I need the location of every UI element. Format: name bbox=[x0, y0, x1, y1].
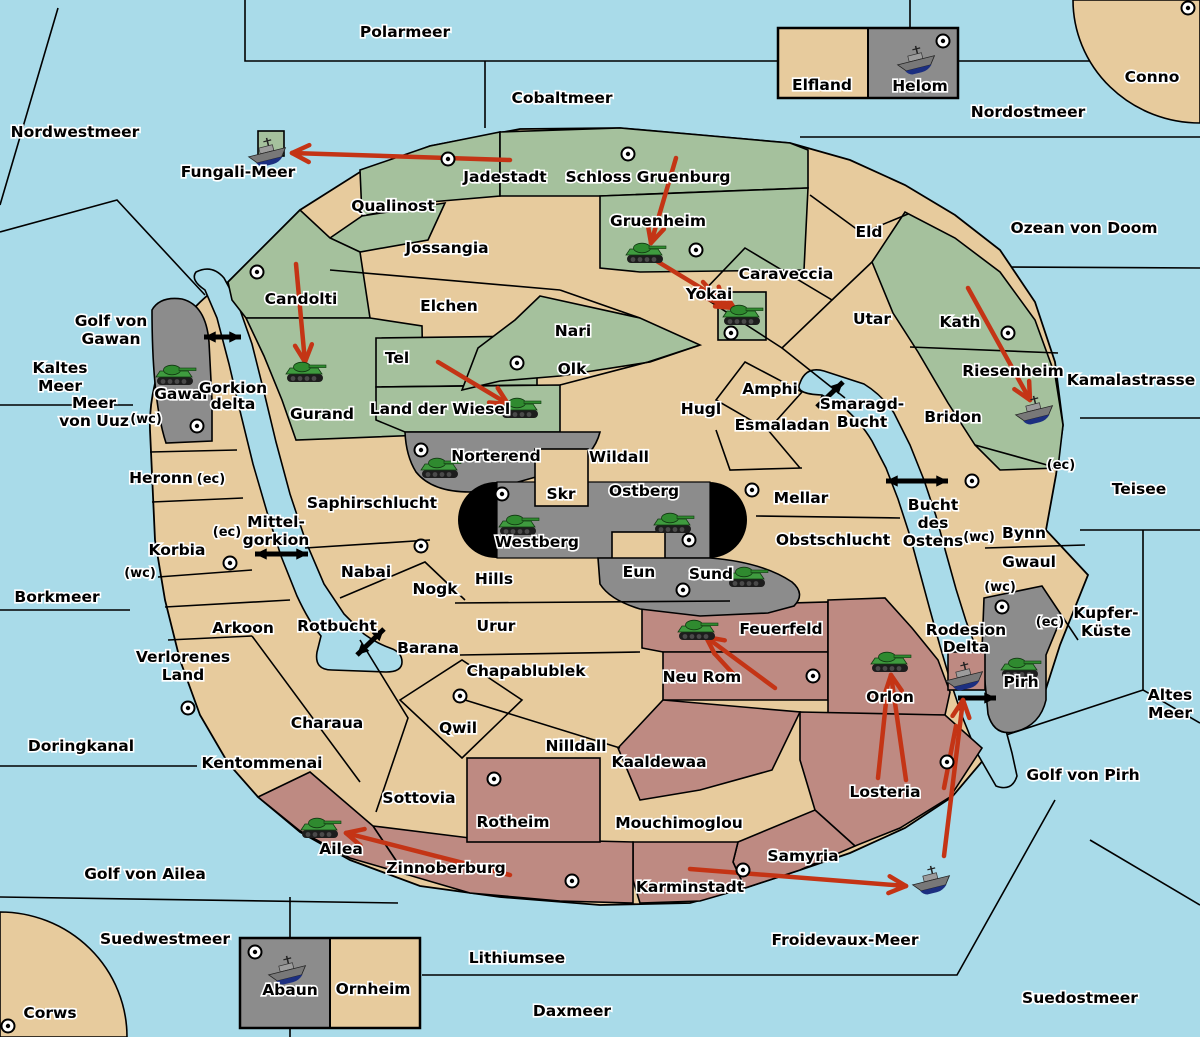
map-label: Gurand bbox=[290, 405, 354, 423]
map-label: Polarmeer bbox=[360, 23, 451, 41]
map-label: Losteria bbox=[849, 783, 920, 801]
map-label: Wildall bbox=[589, 448, 649, 466]
map-label: Skr bbox=[546, 485, 575, 503]
map-label: Obstschlucht bbox=[776, 531, 891, 549]
map-label: Tel bbox=[385, 349, 409, 367]
city-dot-icon bbox=[249, 946, 262, 959]
map-label: Pirh bbox=[1003, 673, 1038, 691]
map-label: (ec) bbox=[213, 525, 241, 540]
city-dot-icon bbox=[251, 266, 264, 279]
map-label: Hugl bbox=[681, 400, 721, 418]
map-label: Hills bbox=[475, 570, 513, 588]
map-label: Delta bbox=[943, 638, 990, 656]
city-dot-icon bbox=[690, 244, 703, 257]
map-label: Ailea bbox=[319, 840, 363, 858]
map-label: Fungali-Meer bbox=[181, 163, 296, 181]
city-dot-icon bbox=[415, 444, 428, 457]
map-label: Jadestadt bbox=[462, 168, 547, 186]
map-label: Rotbucht bbox=[297, 617, 377, 635]
map-label: Kath bbox=[940, 313, 981, 331]
map-label: Samyria bbox=[767, 847, 838, 865]
map-label: Meer bbox=[72, 394, 116, 412]
map-label: Bynn bbox=[1002, 524, 1046, 542]
map-label: Teisee bbox=[1112, 480, 1167, 498]
city-dot-icon bbox=[737, 864, 750, 877]
map-label: Kupfer- bbox=[1073, 604, 1138, 622]
map-label: Heronn bbox=[129, 469, 193, 487]
city-dot-icon bbox=[1002, 327, 1015, 340]
map-label: Ostberg bbox=[609, 482, 679, 500]
map-label: Mittel- bbox=[247, 513, 305, 531]
city-dot-icon bbox=[725, 327, 738, 340]
map-label: Suedwestmeer bbox=[100, 930, 230, 948]
map-label: Cobaltmeer bbox=[511, 89, 612, 107]
map-label: (wc) bbox=[130, 412, 162, 427]
map-label: Eld bbox=[856, 223, 883, 241]
map-label: Nordwestmeer bbox=[11, 123, 140, 141]
map-label: Nogk bbox=[412, 580, 458, 598]
city-dot-icon bbox=[677, 584, 690, 597]
map-label: (wc) bbox=[984, 580, 1016, 595]
map-label: Caraveccia bbox=[739, 265, 834, 283]
map-label: Rotheim bbox=[476, 813, 549, 831]
map-label: Barana bbox=[397, 639, 459, 657]
map-label: Land bbox=[162, 666, 204, 684]
map-label: (ec) bbox=[1036, 615, 1064, 630]
map-label: Borkmeer bbox=[14, 588, 100, 606]
map-label: Mellar bbox=[774, 489, 829, 507]
map-label: delta bbox=[211, 395, 256, 413]
map-label: Orlon bbox=[866, 688, 914, 706]
map-label: Kentommenai bbox=[202, 754, 323, 772]
city-dot-icon bbox=[941, 756, 954, 769]
map-label: Gwaul bbox=[1002, 553, 1056, 571]
city-dot-icon bbox=[415, 540, 428, 553]
map-label: Elchen bbox=[420, 297, 478, 315]
map-label: Altes bbox=[1148, 686, 1192, 704]
arrowhead-icon bbox=[1029, 381, 1030, 400]
map-label: Norterend bbox=[451, 447, 540, 465]
city-dot-icon bbox=[442, 153, 455, 166]
map-label: Westberg bbox=[495, 533, 579, 551]
map-label: Ostens bbox=[903, 532, 964, 550]
map-label: Arkoon bbox=[212, 619, 274, 637]
map-label: Zinnoberburg bbox=[386, 859, 505, 877]
map-label: Kamalastrasse bbox=[1067, 371, 1196, 389]
map-label: Olk bbox=[558, 360, 587, 378]
map-label: (ec) bbox=[197, 472, 225, 487]
map-label: Nordostmeer bbox=[971, 103, 1086, 121]
city-dot-icon bbox=[496, 488, 509, 501]
map-label: Golf von Ailea bbox=[84, 865, 206, 883]
map-label: Meer bbox=[1148, 704, 1192, 722]
game-map-stage: PolarmeerNordwestmeerCobaltmeerNordostme… bbox=[0, 0, 1200, 1037]
map-label: Schloss Gruenburg bbox=[565, 168, 730, 186]
map-label: Gawan bbox=[82, 330, 141, 348]
map-label: von Uuz bbox=[59, 412, 129, 430]
city-dot-icon bbox=[511, 357, 524, 370]
map-label: Golf von bbox=[75, 312, 148, 330]
map-label: (wc) bbox=[963, 530, 995, 545]
map-label: Sund bbox=[689, 565, 733, 583]
map-label: Helom bbox=[892, 77, 948, 95]
map-label: Karminstadt bbox=[636, 878, 745, 896]
map-label: Eun bbox=[623, 563, 656, 581]
map-label: Kaaldewaa bbox=[611, 753, 706, 771]
city-dot-icon bbox=[1182, 2, 1195, 15]
city-dot-icon bbox=[966, 475, 979, 488]
map-label: Conno bbox=[1125, 68, 1180, 86]
city-dot-icon bbox=[937, 35, 950, 48]
map-label: Mouchimoglou bbox=[615, 814, 743, 832]
map-label: Lithiumsee bbox=[469, 949, 565, 967]
city-dot-icon bbox=[191, 420, 204, 433]
city-dot-icon bbox=[224, 557, 237, 570]
map-label: Sottovia bbox=[382, 789, 455, 807]
map-label: Ozean von Doom bbox=[1010, 219, 1157, 237]
city-dot-icon bbox=[746, 484, 759, 497]
city-dot-icon bbox=[807, 670, 820, 683]
map-label: Nabai bbox=[341, 563, 391, 581]
map-label: Rodesion bbox=[926, 621, 1006, 639]
map-label: Urur bbox=[477, 617, 516, 635]
map-label: Esmaladan bbox=[735, 416, 830, 434]
city-dot-icon bbox=[454, 690, 467, 703]
city-dot-icon bbox=[2, 1020, 15, 1033]
map-label: Verlorenes bbox=[136, 648, 230, 666]
map-label: Bucht bbox=[837, 413, 888, 431]
map-label: Utar bbox=[853, 310, 891, 328]
map-label: Küste bbox=[1081, 622, 1131, 640]
map-label: Yokai bbox=[685, 285, 733, 303]
map-label: Korbia bbox=[149, 541, 206, 559]
map-label: Neu Rom bbox=[663, 668, 742, 686]
map-label: Candolti bbox=[265, 290, 338, 308]
map-label: Amphi bbox=[742, 380, 798, 398]
map-label: Riesenheim bbox=[962, 362, 1064, 380]
map-label: (ec) bbox=[1047, 458, 1075, 473]
map-label: Doringkanal bbox=[28, 737, 134, 755]
map-label: Elfland bbox=[792, 76, 852, 94]
map-label: Jossangia bbox=[404, 239, 488, 257]
map-label: gorkion bbox=[243, 531, 310, 549]
city-dot-icon bbox=[683, 534, 696, 547]
map-label: Golf von Pirh bbox=[1026, 766, 1139, 784]
map-label: Abaun bbox=[262, 981, 318, 999]
map-label: Qwil bbox=[439, 719, 477, 737]
map-label: Bucht bbox=[908, 496, 959, 514]
map-label: Froidevaux-Meer bbox=[772, 931, 919, 949]
map-label: Bridon bbox=[924, 408, 982, 426]
map-label: Kaltes bbox=[33, 359, 88, 377]
map-label: Feuerfeld bbox=[739, 620, 822, 638]
city-dot-icon bbox=[182, 702, 195, 715]
map-label: Land der Wiesel bbox=[370, 400, 510, 418]
map-label: Gruenheim bbox=[610, 212, 706, 230]
city-dot-icon bbox=[996, 601, 1009, 614]
game-map: PolarmeerNordwestmeerCobaltmeerNordostme… bbox=[0, 0, 1200, 1037]
map-label: Smaragd- bbox=[820, 395, 905, 413]
map-label: des bbox=[918, 514, 949, 532]
map-label: Chapablublek bbox=[466, 662, 586, 680]
map-label: Suedostmeer bbox=[1022, 989, 1138, 1007]
map-label: (wc) bbox=[124, 566, 156, 581]
map-label: Ornheim bbox=[336, 980, 411, 998]
city-dot-icon bbox=[488, 773, 501, 786]
map-label: Nilldall bbox=[545, 737, 606, 755]
city-dot-icon bbox=[622, 148, 635, 161]
map-label: Qualinost bbox=[351, 197, 435, 215]
map-label: Corws bbox=[23, 1004, 76, 1022]
map-label: Daxmeer bbox=[533, 1002, 611, 1020]
map-label: Meer bbox=[38, 377, 82, 395]
map-label: Saphirschlucht bbox=[307, 494, 438, 512]
city-dot-icon bbox=[566, 875, 579, 888]
map-label: Nari bbox=[555, 322, 591, 340]
map-label: Charaua bbox=[291, 714, 363, 732]
